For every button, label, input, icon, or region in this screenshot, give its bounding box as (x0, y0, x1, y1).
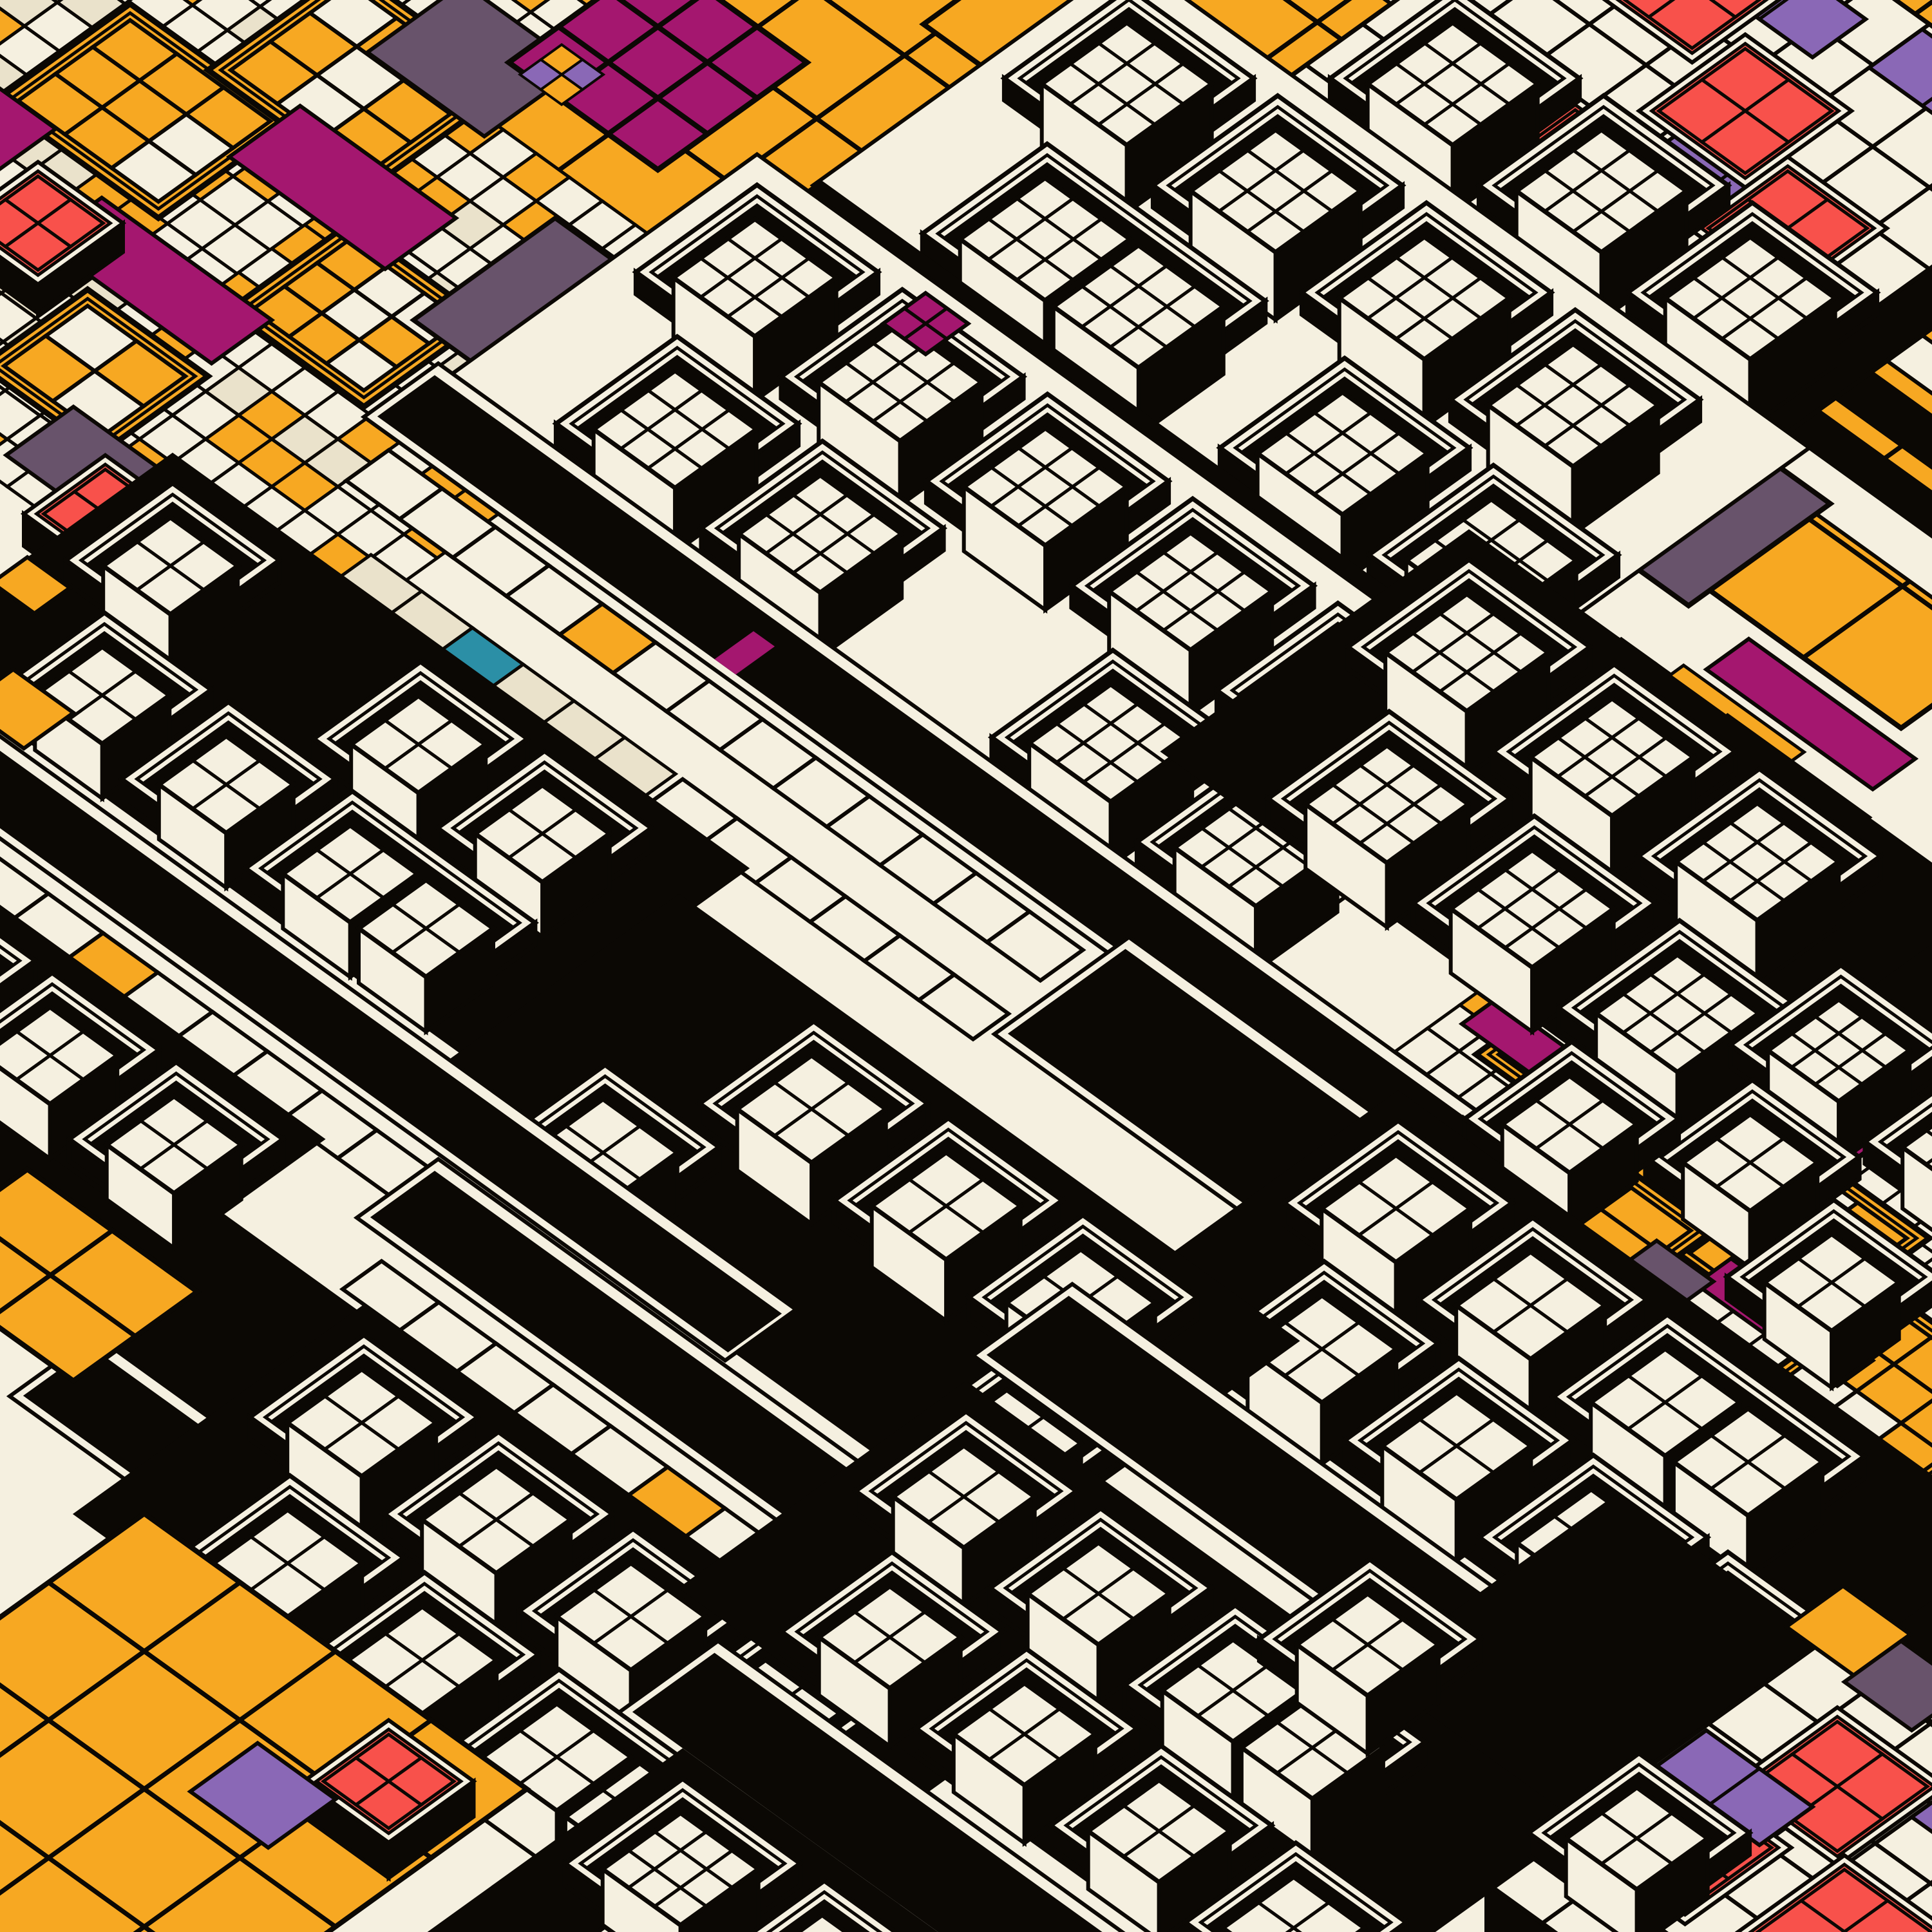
artwork-canvas (0, 0, 1932, 1932)
generative-iso-city-artwork (0, 0, 1932, 1932)
